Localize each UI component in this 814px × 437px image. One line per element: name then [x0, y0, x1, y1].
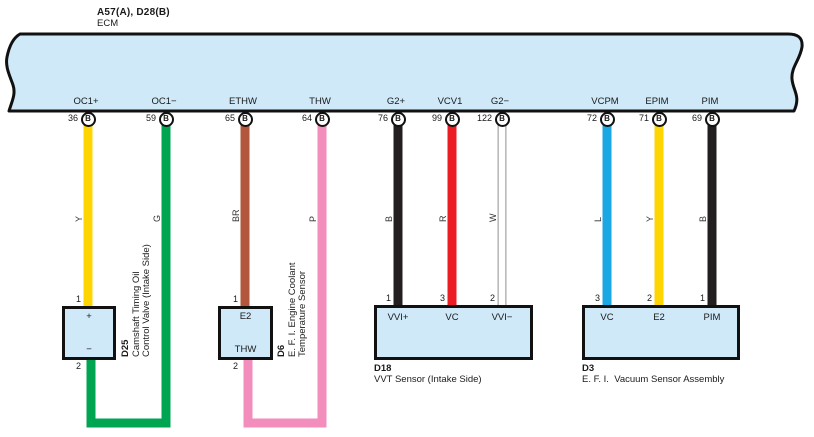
component-terminal-label: − — [65, 344, 113, 355]
terminal-label: G2− — [460, 96, 540, 107]
component-caption-vertical: D6E. F. I. Engine CoolantTemperature Sen… — [277, 262, 309, 357]
component-caption-line: D6 — [277, 262, 288, 357]
terminal-label: THW — [280, 96, 360, 107]
connector-circle: B — [495, 112, 510, 127]
component-pin-number: 1 — [61, 294, 81, 304]
component-terminal-label: E2 — [629, 312, 689, 323]
wire-color-label: W — [488, 214, 498, 223]
ecm-title: ECM — [97, 18, 118, 29]
wire-color-label: R — [438, 216, 448, 223]
component-box-d25: +− — [62, 306, 116, 360]
component-name: E. F. I. Vacuum Sensor Assembly — [582, 374, 724, 385]
terminal-label: PIM — [670, 96, 750, 107]
component-name: VVT Sensor (Intake Side) — [374, 374, 482, 385]
component-terminal-label: E2 — [221, 311, 270, 322]
connector-circle: B — [315, 112, 330, 127]
wire-color-label: G — [152, 215, 162, 222]
terminal-pin-number: 69 — [668, 113, 702, 123]
terminal-pin-number: 36 — [44, 113, 78, 123]
connector-circle: B — [705, 112, 720, 127]
component-terminal-label: VC — [577, 312, 637, 323]
terminal-pin-number: 59 — [122, 113, 156, 123]
terminal-pin-number: 99 — [408, 113, 442, 123]
component-box-d6: E2THW — [218, 306, 273, 360]
terminal-label: OC1− — [124, 96, 204, 107]
terminal-pin-number: 122 — [458, 113, 492, 123]
terminal-pin-number: 72 — [563, 113, 597, 123]
component-terminal-label: VVI− — [472, 312, 532, 323]
component-box-d18: VVI+VCVVI− — [374, 305, 533, 360]
component-pin-number: 2 — [632, 293, 652, 303]
component-caption-vertical: D25Camshaft Timing OilControl Valve (Int… — [121, 244, 153, 357]
component-terminal-label: PIM — [682, 312, 742, 323]
component-terminal-label: THW — [221, 344, 270, 355]
component-caption: D18VVT Sensor (Intake Side) — [374, 363, 482, 385]
component-box-d3: VCE2PIM — [582, 305, 740, 360]
terminal-pin-number: 76 — [354, 113, 388, 123]
wiring-diagram: A57(A), D28(B) ECM OC1+36BYOC1−59BGETHW6… — [0, 0, 814, 437]
component-pin-number: 1 — [685, 293, 705, 303]
connector-circle: B — [652, 112, 667, 127]
component-caption-line: D25 — [121, 244, 132, 357]
component-id: D18 — [374, 363, 482, 374]
component-terminal-label: + — [65, 311, 113, 322]
connector-circle: B — [81, 112, 96, 127]
ecm-connector-codes: A57(A), D28(B) — [97, 7, 170, 18]
wire-color-label: BR — [231, 209, 241, 222]
terminal-pin-number: 71 — [615, 113, 649, 123]
connector-circle: B — [391, 112, 406, 127]
component-pin-number: 2 — [218, 361, 238, 371]
component-pin-number: 2 — [475, 293, 495, 303]
terminal-label: ETHW — [203, 96, 283, 107]
connector-circle: B — [238, 112, 253, 127]
wire-color-label: B — [698, 216, 708, 222]
connector-circle: B — [600, 112, 615, 127]
wire-color-label: Y — [645, 216, 655, 222]
component-pin-number: 2 — [61, 361, 81, 371]
terminal-pin-number: 65 — [201, 113, 235, 123]
connector-circle: B — [159, 112, 174, 127]
component-terminal-label: VVI+ — [368, 312, 428, 323]
component-caption: D3E. F. I. Vacuum Sensor Assembly — [582, 363, 724, 385]
component-pin-number: 1 — [218, 294, 238, 304]
terminal-pin-number: 64 — [278, 113, 312, 123]
terminal-label: OC1+ — [46, 96, 126, 107]
component-caption-line: Control Valve (Intake Side) — [142, 244, 153, 357]
component-pin-number: 3 — [580, 293, 600, 303]
component-pin-number: 1 — [371, 293, 391, 303]
wire-color-label: P — [308, 216, 318, 222]
wire-color-label: B — [384, 216, 394, 222]
component-pin-number: 3 — [425, 293, 445, 303]
wire-color-label: L — [593, 217, 603, 222]
wire-color-label: Y — [74, 216, 84, 222]
component-caption-line: Temperature Sensor — [298, 262, 309, 357]
component-id: D3 — [582, 363, 724, 374]
